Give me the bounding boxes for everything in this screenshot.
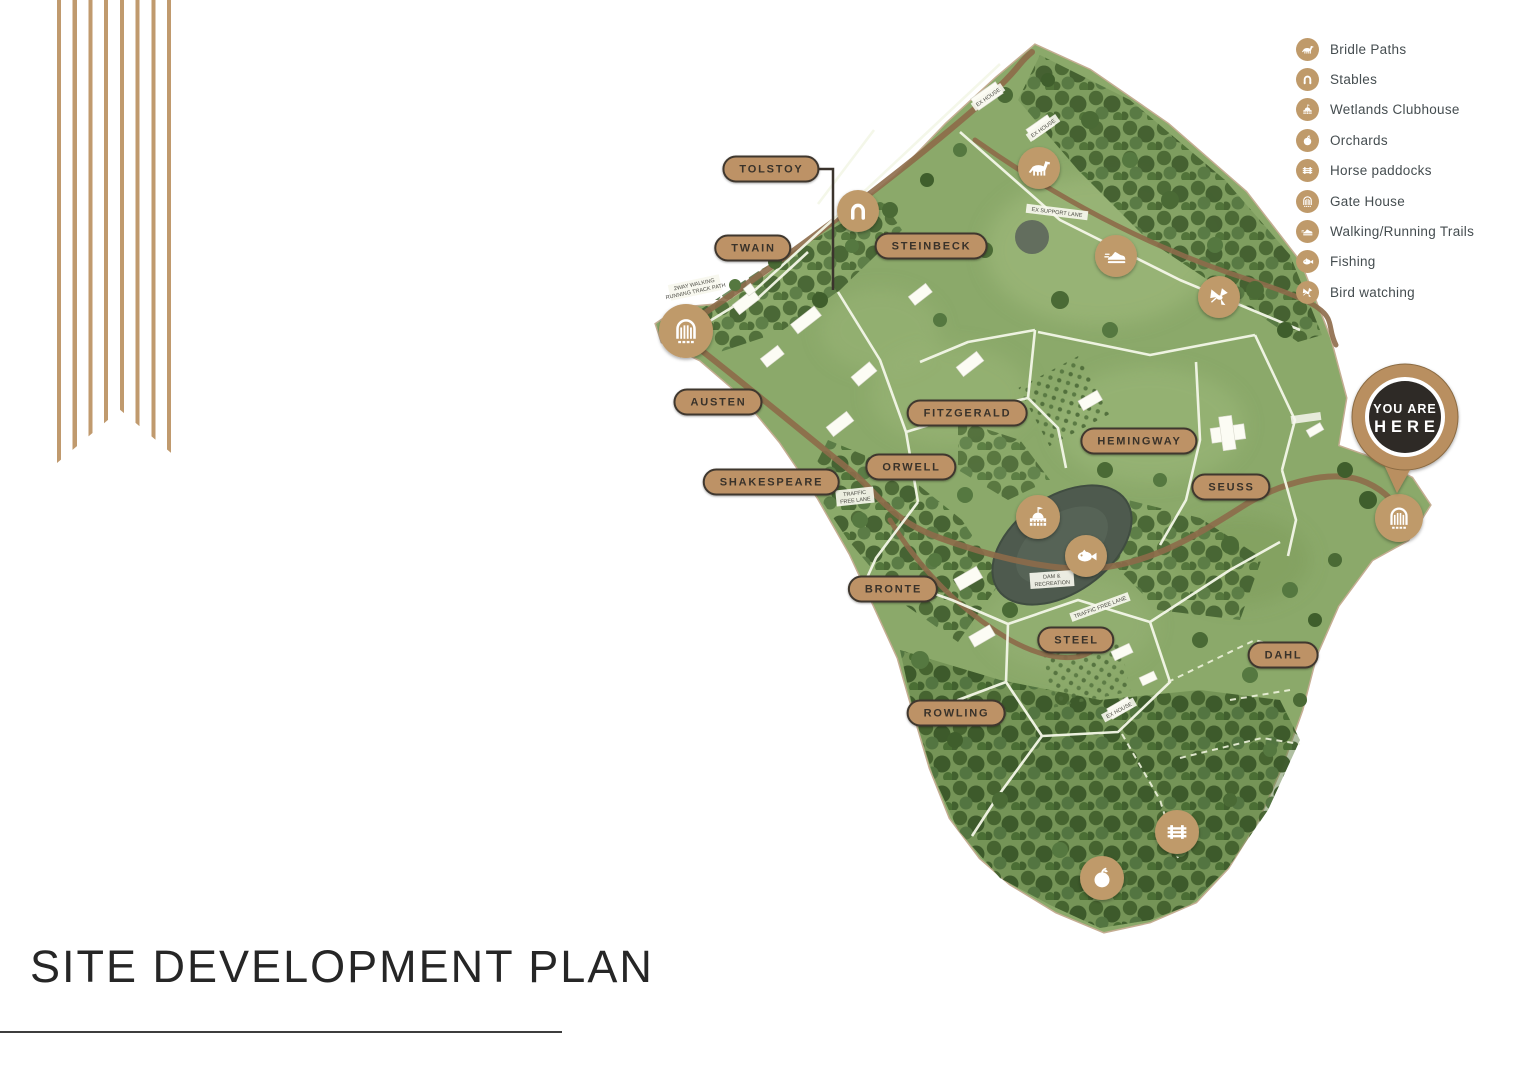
- fishing-icon: [1065, 535, 1107, 577]
- lot-label-bronte: BRONTE: [848, 576, 938, 603]
- lot-label-austen: AUSTEN: [673, 389, 762, 416]
- lot-label-orwell: ORWELL: [865, 454, 956, 481]
- legend-item-wetlands-clubhouse: Wetlands Clubhouse: [1296, 95, 1474, 125]
- gate-icon: [1296, 190, 1319, 213]
- gate-house-east-icon: [1375, 494, 1423, 542]
- orchards-icon: [1080, 856, 1124, 900]
- legend-item-stables: Stables: [1296, 64, 1474, 94]
- lot-label-steinbeck: STEINBECK: [875, 233, 988, 260]
- stables-icon: [837, 190, 879, 232]
- fish-icon: [1296, 250, 1319, 273]
- legend-item-bridle-paths: Bridle Paths: [1296, 34, 1474, 64]
- bird-icon: [1296, 281, 1319, 304]
- title-underline: [0, 1031, 562, 1033]
- paddock-icon: [1296, 159, 1319, 182]
- clubhouse-icon: [1296, 98, 1319, 121]
- lot-label-twain: TWAIN: [714, 235, 791, 262]
- gate-house-icon: [659, 304, 713, 358]
- you-are-here-line2: HERE: [1374, 418, 1440, 436]
- you-are-here-line1: YOU ARE: [1373, 402, 1437, 416]
- lot-label-shakespeare: SHAKESPEARE: [703, 469, 840, 496]
- legend-item-horse-paddocks: Horse paddocks: [1296, 156, 1474, 186]
- wetlands-clubhouse-icon: [1016, 495, 1060, 539]
- page-title: SITE DEVELOPMENT PLAN: [30, 941, 654, 993]
- lot-label-seuss: SEUSS: [1191, 474, 1270, 501]
- bridle-paths-icon: [1018, 147, 1060, 189]
- horse-paddocks-icon: [1155, 810, 1199, 854]
- legend-item-bird-watching: Bird watching: [1296, 277, 1474, 307]
- legend-item-orchards: Orchards: [1296, 125, 1474, 155]
- lot-label-dahl: DAHL: [1248, 642, 1319, 669]
- horseshoe-icon: [1296, 68, 1319, 91]
- lot-label-tolstoy: TOLSTOY: [722, 156, 819, 183]
- lot-label-rowling: ROWLING: [907, 700, 1006, 727]
- walking-trails-icon: [1095, 235, 1137, 277]
- lot-label-fitzgerald: FITZGERALD: [907, 400, 1028, 427]
- lot-label-hemingway: HEMINGWAY: [1080, 428, 1197, 455]
- lot-label-steel: STEEL: [1037, 627, 1114, 654]
- bird-watching-icon: [1198, 276, 1240, 318]
- legend-item-gate-house: Gate House: [1296, 186, 1474, 216]
- legend-item-fishing: Fishing: [1296, 247, 1474, 277]
- dam-recreation-label: DAM &: [1043, 573, 1061, 580]
- map-legend: Bridle Paths Stables Wetlands Clubhouse …: [1296, 34, 1474, 308]
- apple-icon: [1296, 129, 1319, 152]
- legend-item-walking-running-trails: Walking/Running Trails: [1296, 216, 1474, 246]
- horse-icon: [1296, 38, 1319, 61]
- shoe-icon: [1296, 220, 1319, 243]
